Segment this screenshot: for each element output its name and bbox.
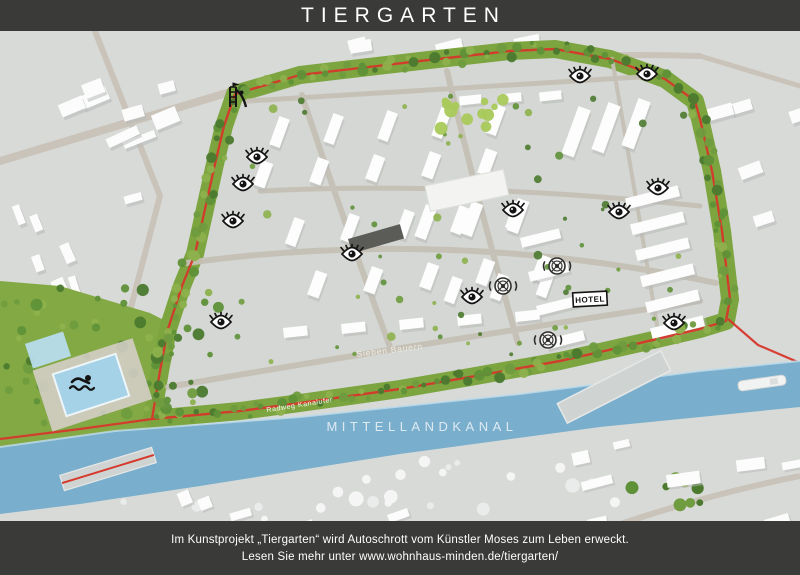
map-area: Sieben Bauern Radweg Kanalufer MITTELLAN…: [0, 31, 800, 521]
header-bar: TIERGARTEN: [0, 0, 800, 31]
hotel-label: HOTEL: [573, 291, 608, 307]
footer-line-1: Im Kunstprojekt „Tiergarten“ wird Autosc…: [171, 534, 629, 546]
map-canvas: Sieben Bauern Radweg Kanalufer MITTELLAN…: [0, 31, 800, 521]
svg-text:HOTEL: HOTEL: [575, 294, 605, 305]
footer-line-2: Lesen Sie mehr unter www.wohnhaus-minden…: [242, 551, 559, 563]
canal-label: MITTELLANDKANAL: [326, 419, 517, 434]
page-title: TIERGARTEN: [294, 4, 506, 28]
footer-bar: Im Kunstprojekt „Tiergarten“ wird Autosc…: [0, 521, 800, 575]
